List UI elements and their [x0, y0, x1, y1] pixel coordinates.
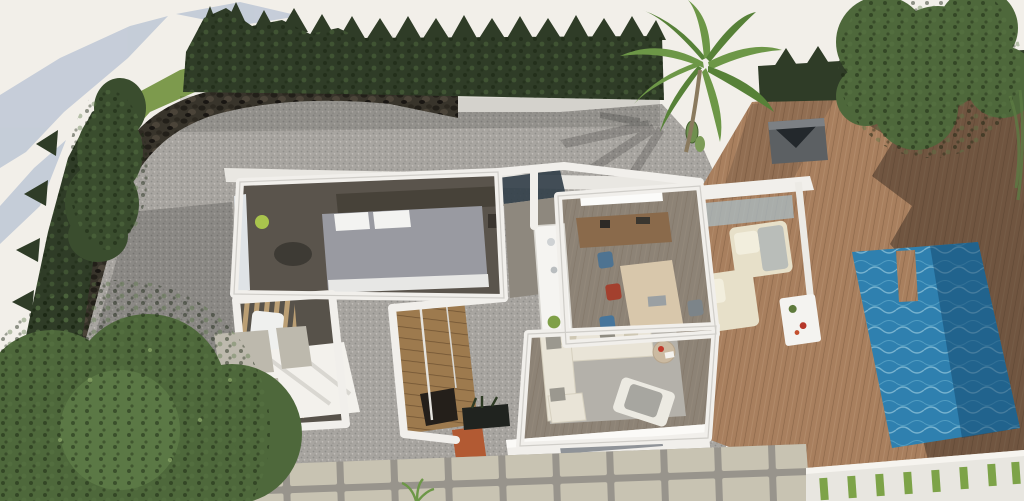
terrace-coffee-table [779, 294, 821, 347]
bedroom-rug [274, 242, 312, 266]
side-table [653, 341, 675, 363]
render-viewport [0, 0, 1024, 501]
bedroom [234, 172, 504, 298]
stair-void [420, 388, 458, 426]
entrance-planter [462, 404, 510, 430]
sideboard [576, 212, 672, 248]
fire-pit [768, 118, 828, 164]
island-plant [548, 316, 561, 329]
bedroom-plant [255, 215, 269, 229]
